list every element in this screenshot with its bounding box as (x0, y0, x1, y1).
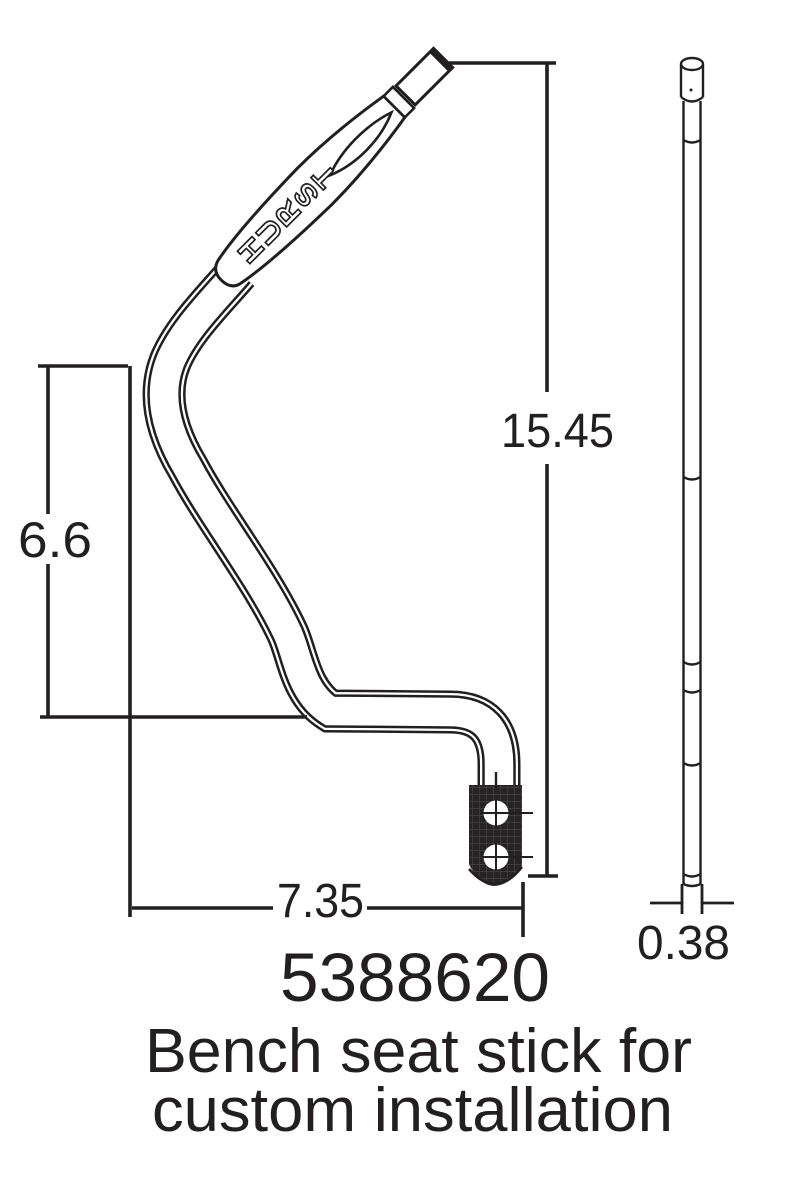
part-number: 5388620 (280, 939, 550, 1016)
stick-tube (164, 272, 499, 802)
rod-bottom-edge (684, 884, 701, 886)
diagram-page: T S R U H (0, 0, 792, 1200)
dim-label-total-height: 15.45 (501, 405, 614, 458)
rod-neck (681, 97, 703, 102)
dim-label-rod-diameter: 0.38 (637, 917, 730, 970)
front-view: T S R U H (164, 40, 533, 886)
rod-joint-4 (684, 690, 701, 693)
rod-joint-5 (684, 763, 701, 766)
technical-drawing: T S R U H (0, 0, 792, 1200)
rod-joint-2 (684, 477, 701, 480)
handle: T S R U H (203, 40, 461, 298)
dim-label-overall-width: 7.35 (277, 875, 364, 928)
dim-label-bend-height: 6.6 (18, 512, 92, 568)
rod-end-band (684, 874, 701, 877)
rod-joint-3 (684, 662, 701, 665)
dim-rod-diameter (650, 884, 734, 914)
rod-cap-dot (690, 89, 693, 92)
rod-top-cap (681, 58, 703, 70)
rod-joint-1 (684, 140, 701, 143)
caption-line-2: custom installation (152, 1076, 673, 1145)
mounting-bracket (469, 772, 533, 886)
side-view (681, 58, 703, 886)
brand-lettering: T S R U H (232, 156, 344, 268)
threaded-tip (396, 48, 453, 105)
